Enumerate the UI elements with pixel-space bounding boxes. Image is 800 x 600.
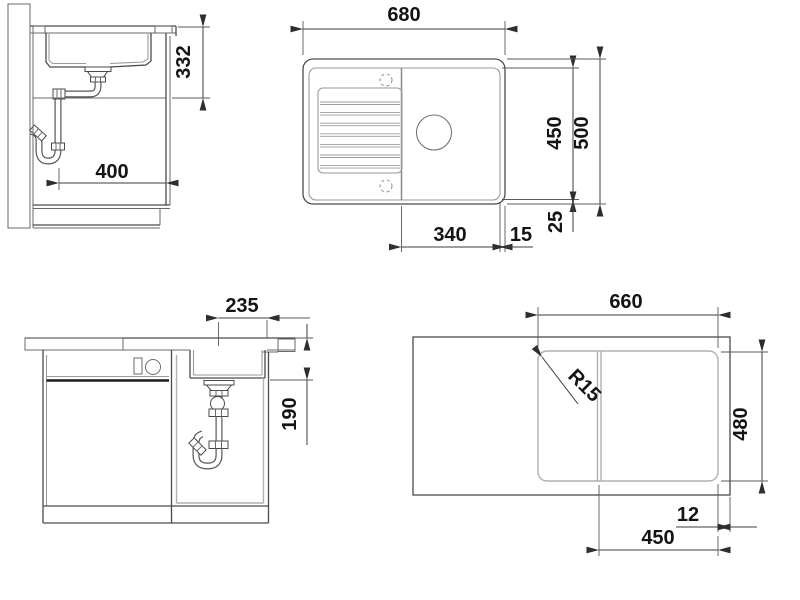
dim-label-332: 332: [173, 45, 195, 78]
dim-label-680: 680: [387, 4, 420, 26]
dimension-r15: R15: [542, 357, 605, 407]
drainboard-grooves: [320, 102, 400, 168]
front-section-view: 235 190: [25, 295, 313, 523]
drain-trap-front: [189, 381, 234, 467]
dimension-190: 190: [270, 324, 313, 445]
dim-label-12: 12: [677, 504, 699, 526]
sink-outer-edge: [303, 59, 505, 204]
cabinet-front: [43, 350, 269, 523]
drain-trap-side: [30, 67, 111, 161]
tap-hole-bottom: [380, 180, 392, 192]
dimension-660: 660: [538, 291, 718, 348]
dim-label-500: 500: [571, 116, 593, 149]
dimension-450-plan: 450: [502, 68, 579, 200]
counter-section-front-left: [25, 338, 123, 350]
counter-section-left: [33, 26, 45, 33]
dimension-332: 332: [172, 27, 210, 98]
dimension-340: 340: [402, 202, 506, 252]
dim-label-660: 660: [609, 291, 642, 313]
dimension-400: 400: [59, 161, 166, 190]
dim-label-340: 340: [433, 224, 466, 246]
dimension-480: 480: [721, 352, 768, 481]
technical-drawing-page: 332 400 680: [0, 0, 800, 600]
dim-label-190: 190: [279, 397, 301, 430]
dimension-25: 25: [545, 204, 573, 233]
tap-hole-top: [380, 74, 392, 86]
dimension-12: 12: [676, 484, 757, 532]
counter-section-right: [155, 26, 172, 33]
side-section-view: 332 400: [8, 4, 210, 228]
dim-label-25: 25: [545, 211, 567, 233]
dim-label-r15: R15: [563, 365, 605, 407]
sink-bowl-front: [190, 350, 265, 378]
sink-installation-drawing: 332 400 680: [0, 0, 800, 600]
dim-label-400: 400: [95, 161, 128, 183]
dim-label-235: 235: [225, 295, 258, 317]
dimension-680: 680: [303, 4, 505, 55]
dim-label-450-cutout: 450: [641, 527, 674, 549]
cutout-outline: [538, 351, 718, 481]
control-rect-symbol: [134, 358, 142, 374]
wall-hatch: [8, 4, 30, 228]
dim-label-15: 15: [510, 224, 532, 246]
drain-hole: [417, 115, 452, 150]
worktop-outline: [413, 337, 730, 495]
cutout-view: R15 660 480 12 450: [413, 291, 768, 556]
drainboard-area: [318, 88, 402, 173]
control-knob-symbol: [146, 360, 161, 375]
sink-bowl-section: [46, 33, 151, 67]
top-plan-view: 680 450 500 25 340: [303, 4, 606, 252]
dim-label-480: 480: [730, 407, 752, 440]
dimension-15: 15: [505, 224, 533, 247]
dim-label-450-plan: 450: [544, 116, 566, 149]
